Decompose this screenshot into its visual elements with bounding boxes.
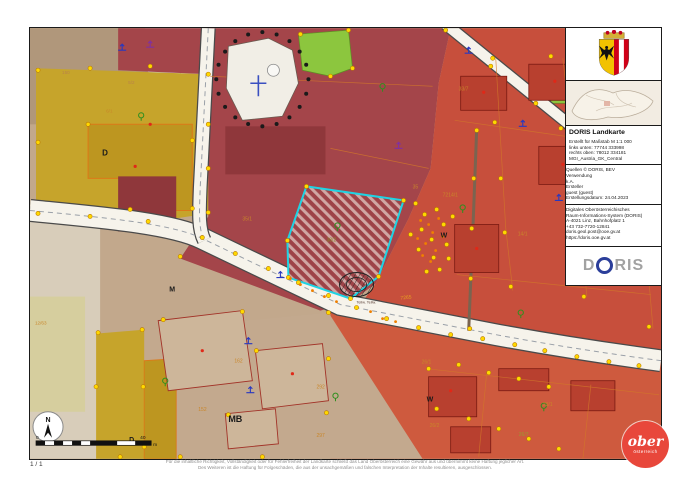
land-oberoesterreich-logo: ober österreich <box>622 421 669 468</box>
doris-map-export-page: { "panel": { "title": "DORIS Landkarte",… <box>0 0 690 488</box>
map-label: MB <box>228 414 242 424</box>
doris-logo-ris: RIS <box>614 257 644 275</box>
map-label: 297 <box>316 433 325 439</box>
map-label: Teilw. Teilw. <box>357 301 377 305</box>
map-label: W <box>441 232 448 239</box>
doris-logo: DRIS <box>566 247 661 285</box>
svg-text:m: m <box>153 443 157 448</box>
map-label: 6/1 <box>106 108 113 113</box>
terrain-scribble-symbol <box>339 273 373 297</box>
contact-info: Digitales OberösterreichischesRaum-Infor… <box>566 204 661 243</box>
svg-text:0: 0 <box>36 435 39 441</box>
map-label: 35/1 <box>242 216 252 222</box>
extent-info: Erstellt für Maßstab M 1:1 000links unte… <box>569 138 658 163</box>
doris-logo-o-ring <box>596 257 613 274</box>
disclaimer: Für die inhaltliche Richtigkeit, Vollstä… <box>0 459 690 470</box>
overview-map-thumbnail <box>566 81 661 126</box>
map-label: 150 <box>62 70 70 75</box>
map-label: 33/7 <box>459 86 469 92</box>
brand-line-1: ober <box>628 436 663 449</box>
map-label: 7214/1 <box>443 192 459 198</box>
panel-title: DORIS Landkarte <box>569 129 658 136</box>
map-label: 35 <box>413 184 419 190</box>
map-label: 12/63 <box>35 321 47 326</box>
map-label: D <box>102 148 108 157</box>
svg-text:40: 40 <box>140 435 146 441</box>
doris-logo-d: D <box>583 257 596 275</box>
disclaimer-line-2: Des Weiteren ist die Haftung für Folgesc… <box>0 465 690 471</box>
brand-line-2: österreich <box>633 449 657 454</box>
text-line: https://doris.ooe.gv.at <box>566 235 661 241</box>
map-label: 26/7 <box>519 432 529 438</box>
map-label: W <box>427 397 434 404</box>
map-label: 152 <box>198 407 207 413</box>
map-label: 292 <box>316 385 325 391</box>
map-label: M <box>169 287 175 294</box>
map-metadata: DORIS Landkarte Erstellt für Maßstab M 1… <box>566 126 661 247</box>
text-line: Erstellungsdatum: 24.04.2023 <box>566 195 661 201</box>
map-label: 14/1 <box>518 231 528 237</box>
source-info: Quellen © DORIS, BEVVerwendungk.A.Erstel… <box>566 164 661 203</box>
map-info-panel: DORIS Landkarte Erstellt für Maßstab M 1… <box>565 27 662 286</box>
map-label: 23/1 <box>543 402 553 408</box>
map-label: 7265 <box>400 294 412 301</box>
map-label: 26/1 <box>422 360 432 366</box>
map-label: 26/2 <box>430 423 440 429</box>
coat-of-arms-box <box>566 28 661 81</box>
text-line: MGI_Austria_GK_Central <box>569 156 658 162</box>
map-label: 38/2 <box>326 237 336 243</box>
svg-text:N: N <box>45 417 50 424</box>
map-label: 162 <box>234 359 243 365</box>
church-annotation-circle <box>267 64 279 76</box>
map-label: 5/2 <box>128 80 135 85</box>
upper-austria-coat-of-arms-icon <box>594 30 634 78</box>
